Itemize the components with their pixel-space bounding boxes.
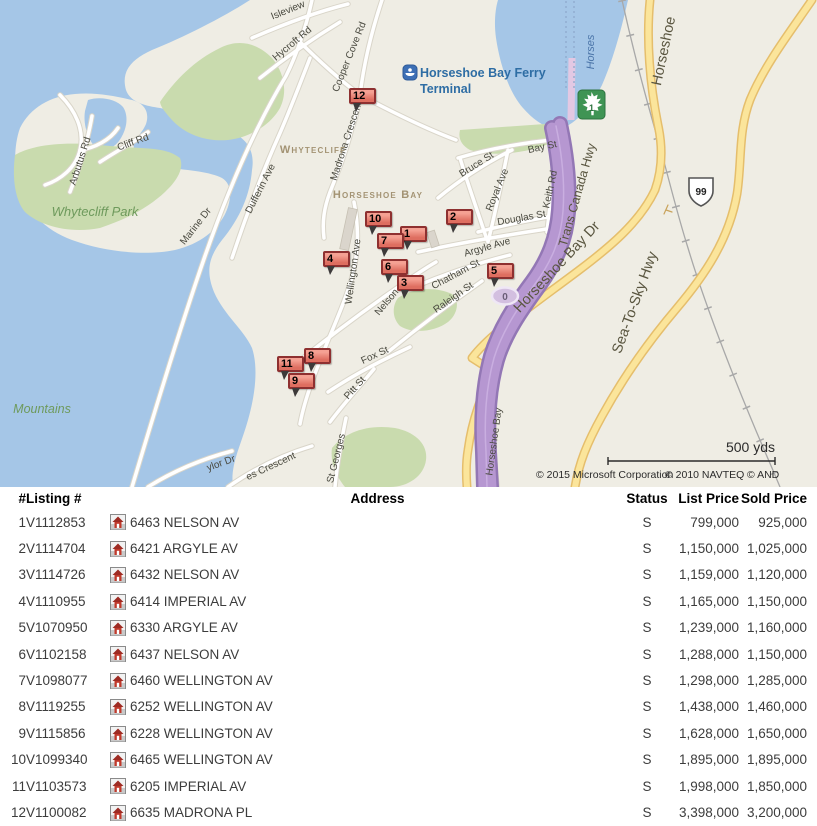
- listing-number: 1: [0, 509, 26, 535]
- listing-address: 6635 MADRONA PL: [130, 799, 625, 825]
- listing-row: 9 V1115856 6228 WELLINGTON AV S 1,628,00…: [0, 720, 807, 746]
- listing-list-price: 1,438,000: [669, 694, 739, 720]
- scale-label: 500 yds: [726, 439, 775, 455]
- listing-icon-cell: [106, 615, 130, 641]
- map-marker-5[interactable]: 5: [487, 263, 514, 279]
- listing-sold-price: 1,025,000: [739, 535, 807, 561]
- ferry-terminal-icon: [403, 65, 417, 80]
- listing-id: V1114704: [26, 535, 106, 561]
- house-icon[interactable]: [110, 726, 126, 742]
- house-icon[interactable]: [110, 778, 126, 794]
- map-label: Horseshoe Bay: [333, 189, 423, 201]
- listing-row: 5 V1070950 6330 ARGYLE AV S 1,239,000 1,…: [0, 615, 807, 641]
- header-listing: Listing #: [26, 488, 106, 509]
- map-marker-4[interactable]: 4: [323, 251, 350, 267]
- listing-sold-price: 1,150,000: [739, 588, 807, 614]
- page: 0 99 1 Horseshoe Bay Ferry Terminal: [0, 0, 817, 826]
- listing-status: S: [625, 694, 669, 720]
- house-icon[interactable]: [110, 567, 126, 583]
- map-label: Mountains: [13, 402, 71, 416]
- listing-address: 6432 NELSON AV: [130, 562, 625, 588]
- copyright-navteq: © 2010 NAVTEQ: [665, 469, 744, 481]
- map-marker-12[interactable]: 12: [349, 88, 376, 104]
- table-header-row: # Listing # Address Status List Price So…: [0, 488, 807, 509]
- listing-status: S: [625, 562, 669, 588]
- listing-list-price: 1,165,000: [669, 588, 739, 614]
- listing-row: 12 V1100082 6635 MADRONA PL S 3,398,000 …: [0, 799, 807, 825]
- listing-address: 6414 IMPERIAL AV: [130, 588, 625, 614]
- listing-icon-cell: [106, 509, 130, 535]
- listing-row: 11 V1103573 6205 IMPERIAL AV S 1,998,000…: [0, 773, 807, 799]
- svg-text:0: 0: [502, 292, 508, 303]
- map-marker-7[interactable]: 7: [377, 233, 404, 249]
- header-list-price: List Price: [669, 488, 739, 509]
- listing-icon-cell: [106, 799, 130, 825]
- header-icon-spacer: [106, 488, 130, 509]
- map-marker-1[interactable]: 1: [400, 226, 427, 242]
- house-icon[interactable]: [110, 514, 126, 530]
- listing-address: 6205 IMPERIAL AV: [130, 773, 625, 799]
- trans-canada-shield: 1: [578, 90, 605, 119]
- listing-status: S: [625, 615, 669, 641]
- listing-number: 2: [0, 535, 26, 561]
- map-marker-10[interactable]: 10: [365, 211, 392, 227]
- listing-list-price: 1,298,000: [669, 667, 739, 693]
- listing-id: V1100082: [26, 799, 106, 825]
- listing-id: V1110955: [26, 588, 106, 614]
- svg-text:1: 1: [589, 103, 594, 113]
- map-marker-8[interactable]: 8: [304, 348, 331, 364]
- house-icon[interactable]: [110, 541, 126, 557]
- listing-list-price: 1,288,000: [669, 641, 739, 667]
- listing-id: V1115856: [26, 720, 106, 746]
- listing-list-price: 1,895,000: [669, 747, 739, 773]
- header-status: Status: [625, 488, 669, 509]
- copyright-microsoft: © 2015 Microsoft Corporation: [536, 469, 673, 481]
- listing-icon-cell: [106, 588, 130, 614]
- listing-status: S: [625, 509, 669, 535]
- listing-list-price: 1,628,000: [669, 720, 739, 746]
- listing-address: 6252 WELLINGTON AV: [130, 694, 625, 720]
- listing-id: V1119255: [26, 694, 106, 720]
- listing-number: 3: [0, 562, 26, 588]
- listing-id: V1099340: [26, 747, 106, 773]
- listing-status: S: [625, 773, 669, 799]
- listing-icon-cell: [106, 535, 130, 561]
- listing-sold-price: 1,460,000: [739, 694, 807, 720]
- listing-number: 10: [0, 747, 26, 773]
- listing-icon-cell: [106, 747, 130, 773]
- listing-row: 7 V1098077 6460 WELLINGTON AV S 1,298,00…: [0, 667, 807, 693]
- listing-sold-price: 1,120,000: [739, 562, 807, 588]
- listing-icon-cell: [106, 562, 130, 588]
- listing-icon-cell: [106, 641, 130, 667]
- listing-icon-cell: [106, 720, 130, 746]
- listing-sold-price: 1,150,000: [739, 641, 807, 667]
- listing-status: S: [625, 747, 669, 773]
- header-address: Address: [130, 488, 625, 509]
- map-label: Whytecliff: [280, 144, 346, 156]
- header-sold-price: Sold Price: [739, 488, 807, 509]
- listing-row: 3 V1114726 6432 NELSON AV S 1,159,000 1,…: [0, 562, 807, 588]
- copyright-and: © AND: [747, 469, 780, 481]
- listing-id: V1070950: [26, 615, 106, 641]
- svg-text:99: 99: [695, 187, 707, 198]
- listing-number: 9: [0, 720, 26, 746]
- listing-address: 6330 ARGYLE AV: [130, 615, 625, 641]
- listing-sold-price: 1,850,000: [739, 773, 807, 799]
- header-number: #: [0, 488, 26, 509]
- listing-address: 6437 NELSON AV: [130, 641, 625, 667]
- ferry-terminal-label-2: Terminal: [420, 82, 471, 96]
- map-label: Horses: [585, 34, 597, 69]
- listing-id: V1098077: [26, 667, 106, 693]
- listing-status: S: [625, 667, 669, 693]
- listing-sold-price: 1,650,000: [739, 720, 807, 746]
- listing-list-price: 3,398,000: [669, 799, 739, 825]
- listing-id: V1102158: [26, 641, 106, 667]
- listing-sold-price: 3,200,000: [739, 799, 807, 825]
- listing-address: 6463 NELSON AV: [130, 509, 625, 535]
- listing-row: 1 V1112853 6463 NELSON AV S 799,000 925,…: [0, 509, 807, 535]
- listing-id: V1103573: [26, 773, 106, 799]
- listing-address: 6421 ARGYLE AV: [130, 535, 625, 561]
- listing-status: S: [625, 535, 669, 561]
- listing-list-price: 1,998,000: [669, 773, 739, 799]
- ferry-terminal-label-1: Horseshoe Bay Ferry: [420, 66, 546, 80]
- listing-address: 6460 WELLINGTON AV: [130, 667, 625, 693]
- listing-list-price: 1,159,000: [669, 562, 739, 588]
- listing-icon-cell: [106, 694, 130, 720]
- house-icon[interactable]: [110, 646, 126, 662]
- listing-number: 12: [0, 799, 26, 825]
- listing-number: 8: [0, 694, 26, 720]
- listing-sold-price: 925,000: [739, 509, 807, 535]
- listing-icon-cell: [106, 773, 130, 799]
- listing-id: V1114726: [26, 562, 106, 588]
- listing-status: S: [625, 641, 669, 667]
- listing-address: 6465 WELLINGTON AV: [130, 747, 625, 773]
- listing-status: S: [625, 588, 669, 614]
- listing-row: 6 V1102158 6437 NELSON AV S 1,288,000 1,…: [0, 641, 807, 667]
- house-icon[interactable]: [110, 594, 126, 610]
- listing-sold-price: 1,895,000: [739, 747, 807, 773]
- ferry-approach: [571, 58, 572, 120]
- listing-number: 7: [0, 667, 26, 693]
- listing-number: 11: [0, 773, 26, 799]
- listing-list-price: 799,000: [669, 509, 739, 535]
- map-marker-9[interactable]: 9: [288, 373, 315, 389]
- listing-number: 5: [0, 615, 26, 641]
- map-label: Whytecliff Park: [52, 204, 140, 219]
- house-icon[interactable]: [110, 620, 126, 636]
- listing-icon-cell: [106, 667, 130, 693]
- listing-status: S: [625, 720, 669, 746]
- listing-row: 8 V1119255 6252 WELLINGTON AV S 1,438,00…: [0, 694, 807, 720]
- house-icon[interactable]: [110, 699, 126, 715]
- listing-list-price: 1,239,000: [669, 615, 739, 641]
- listing-status: S: [625, 799, 669, 825]
- house-icon[interactable]: [110, 805, 126, 821]
- map-marker-11[interactable]: 11: [277, 356, 304, 372]
- map-marker-6[interactable]: 6: [381, 259, 408, 275]
- map-marker-2[interactable]: 2: [446, 209, 473, 225]
- listing-row: 10 V1099340 6465 WELLINGTON AV S 1,895,0…: [0, 747, 807, 773]
- listings-table: # Listing # Address Status List Price So…: [0, 488, 807, 826]
- listing-sold-price: 1,285,000: [739, 667, 807, 693]
- house-icon[interactable]: [110, 752, 126, 768]
- listing-sold-price: 1,160,000: [739, 615, 807, 641]
- listing-number: 6: [0, 641, 26, 667]
- house-icon[interactable]: [110, 673, 126, 689]
- listing-address: 6228 WELLINGTON AV: [130, 720, 625, 746]
- listing-id: V1112853: [26, 509, 106, 535]
- map-canvas[interactable]: 0 99 1 Horseshoe Bay Ferry Terminal: [0, 0, 817, 487]
- listing-list-price: 1,150,000: [669, 535, 739, 561]
- listing-row: 2 V1114704 6421 ARGYLE AV S 1,150,000 1,…: [0, 535, 807, 561]
- listing-row: 4 V1110955 6414 IMPERIAL AV S 1,165,000 …: [0, 588, 807, 614]
- listing-number: 4: [0, 588, 26, 614]
- map-marker-3[interactable]: 3: [397, 275, 424, 291]
